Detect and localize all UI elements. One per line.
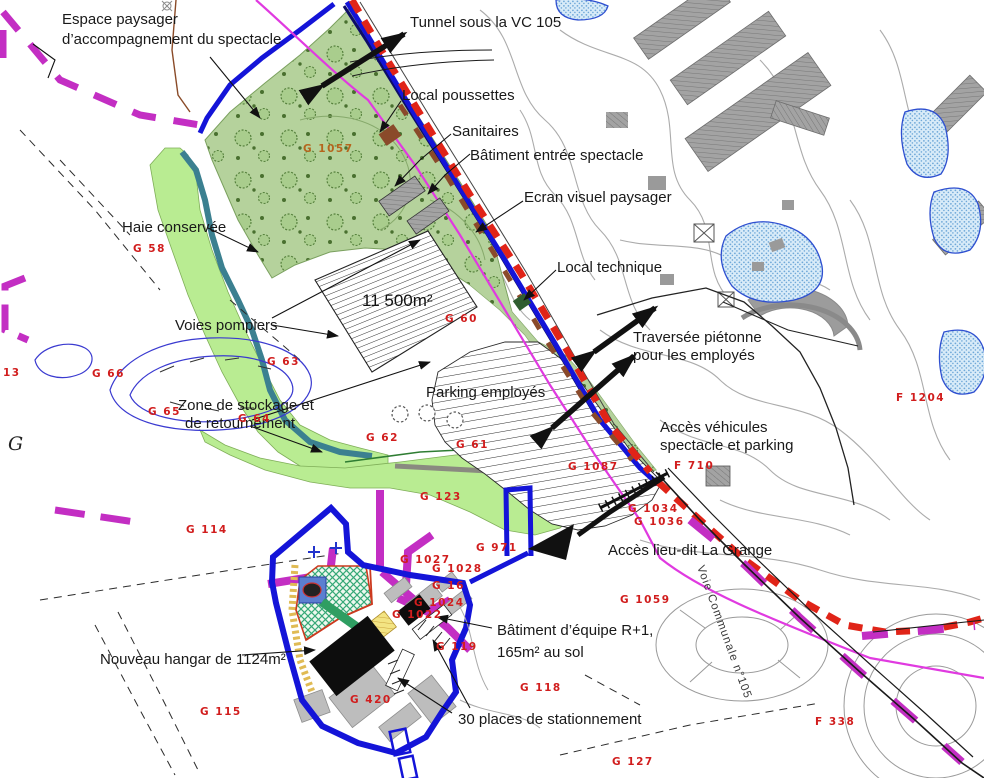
parcel-g65: G 65 xyxy=(148,406,181,418)
parcel-g64: G 64 xyxy=(238,413,271,425)
parcel-g61: G 61 xyxy=(456,439,489,451)
parcel-g420: G 420 xyxy=(350,694,392,706)
label-voie-communale: Voie Communale n°105 xyxy=(694,564,753,701)
label-batiment-equipe-1: Bâtiment d’équipe R+1, xyxy=(497,622,653,639)
label-acces-vehicules-2: spectacle et parking xyxy=(660,437,793,454)
label-espace-paysager-1: Espace paysager xyxy=(62,11,178,28)
label-section-g: G xyxy=(8,433,23,455)
parcel-g1057: G 1057 xyxy=(303,143,354,155)
magenta-bracket-left xyxy=(5,278,28,340)
parcel-g16: G 16 xyxy=(432,580,465,592)
label-acces-vehicules-1: Accès véhicules xyxy=(660,419,768,436)
label-local-technique: Local technique xyxy=(557,259,662,276)
label-traversee-2: pour les employés xyxy=(633,347,755,364)
parcel-g119: G 119 xyxy=(436,641,478,653)
parcel-g13: 13 xyxy=(3,367,21,379)
parcel-g1034: G 1034 xyxy=(628,503,679,515)
magenta-dash-bl xyxy=(55,510,135,522)
parcel-f1204: F 1204 xyxy=(896,392,945,404)
label-surface: 11 500m² xyxy=(362,291,433,310)
parcel-g60: G 60 xyxy=(445,313,478,325)
parcel-g1024: G 1024 xyxy=(414,597,465,609)
label-hangar: Nouveau hangar de 1124m² xyxy=(100,651,286,668)
label-haie: Haie conservée xyxy=(122,219,226,236)
magenta-dashed-topleft xyxy=(3,12,200,125)
parcel-g114: G 114 xyxy=(186,524,228,536)
label-voies-pompiers: Voies pompiers xyxy=(175,317,278,334)
parcel-g62: G 62 xyxy=(366,432,399,444)
label-batiment-entree: Bâtiment entrée spectacle xyxy=(470,147,643,164)
map-canvas: Espace paysager d’accompagnement du spec… xyxy=(0,0,984,778)
label-tunnel: Tunnel sous la VC 105 xyxy=(410,14,561,31)
parcel-f710: F 710 xyxy=(674,460,714,472)
label-ecran: Ecran visuel paysager xyxy=(524,189,672,206)
parcel-g1036: G 1036 xyxy=(634,516,685,528)
parcel-g1059: G 1059 xyxy=(620,594,671,606)
label-sanitaires: Sanitaires xyxy=(452,123,519,140)
label-stationnement: 30 places de stationnement xyxy=(458,711,642,728)
parcel-g66: G 66 xyxy=(92,368,125,380)
label-poussettes: Local poussettes xyxy=(402,87,515,104)
parcel-g63: G 63 xyxy=(267,356,300,368)
label-zone-1: Zone de stockage et xyxy=(178,397,315,414)
label-espace-paysager-2: d’accompagnement du spectacle xyxy=(62,31,281,48)
parcel-g1028: G 1028 xyxy=(432,563,483,575)
parcel-g127: G 127 xyxy=(612,756,654,768)
label-parking: Parking employés xyxy=(426,384,545,401)
parcel-g1022: G 1022 xyxy=(392,609,443,621)
label-acces-grange: Accès lieu-dit La Grange xyxy=(608,542,772,559)
label-batiment-equipe-2: 165m² au sol xyxy=(497,644,584,661)
parcel-g1087: G 1087 xyxy=(568,461,619,473)
parcel-g118: G 118 xyxy=(520,682,562,694)
parcel-g115: G 115 xyxy=(200,706,242,718)
parcel-f338: F 338 xyxy=(815,716,855,728)
parcel-g123: G 123 xyxy=(420,491,462,503)
parcel-g971: G 971 xyxy=(476,542,518,554)
label-traversee-1: Traversée piétonne xyxy=(633,329,762,346)
site-plan-map: Espace paysager d’accompagnement du spec… xyxy=(0,0,984,778)
parcel-g58: G 58 xyxy=(133,243,166,255)
